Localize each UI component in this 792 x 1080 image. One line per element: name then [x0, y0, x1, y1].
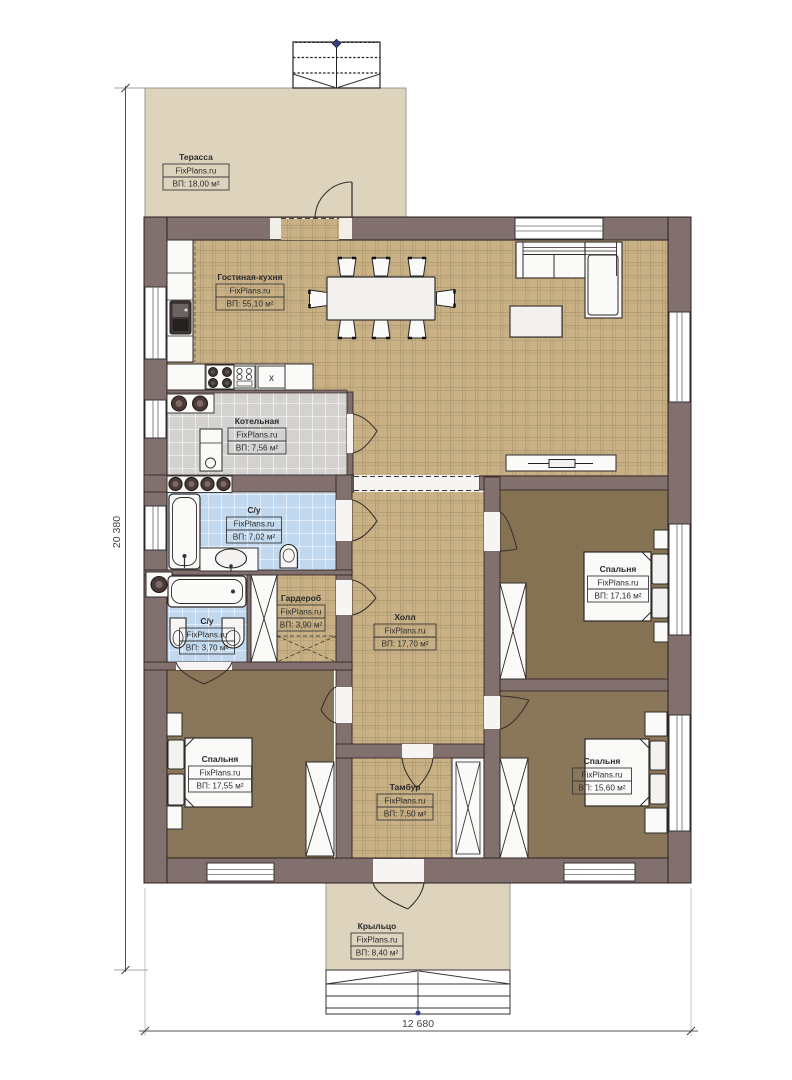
svg-text:Спальня: Спальня — [584, 756, 621, 766]
svg-text:FixPlans.ru: FixPlans.ru — [234, 520, 275, 529]
svg-text:ВП: 17,70 м²: ВП: 17,70 м² — [381, 640, 428, 649]
svg-text:FixPlans.ru: FixPlans.ru — [582, 771, 623, 780]
svg-text:FixPlans.ru: FixPlans.ru — [357, 936, 398, 945]
svg-text:ВП: 8,40 м²: ВП: 8,40 м² — [356, 949, 399, 958]
svg-text:FixPlans.ru: FixPlans.ru — [385, 797, 426, 806]
svg-text:ВП: 55,10 м²: ВП: 55,10 м² — [226, 300, 273, 309]
svg-text:ВП: 17,16 м²: ВП: 17,16 м² — [594, 592, 641, 601]
svg-text:ВП: 17,55 м²: ВП: 17,55 м² — [196, 782, 243, 791]
svg-text:Тамбур: Тамбур — [390, 782, 421, 792]
svg-text:ВП: 3,90 м²: ВП: 3,90 м² — [280, 621, 323, 630]
svg-text:x: x — [269, 373, 274, 384]
svg-text:С/у: С/у — [200, 616, 214, 626]
svg-text:ВП: 7,02 м²: ВП: 7,02 м² — [233, 533, 276, 542]
svg-text:Крыльцо: Крыльцо — [358, 921, 397, 931]
svg-text:ВП: 18,00 м²: ВП: 18,00 м² — [172, 180, 219, 189]
svg-text:FixPlans.ru: FixPlans.ru — [176, 167, 217, 176]
svg-text:FixPlans.ru: FixPlans.ru — [598, 579, 639, 588]
svg-text:FixPlans.ru: FixPlans.ru — [281, 608, 322, 617]
svg-text:FixPlans.ru: FixPlans.ru — [230, 287, 271, 296]
svg-text:Спальня: Спальня — [202, 754, 239, 764]
svg-text:ВП: 15,60 м²: ВП: 15,60 м² — [578, 784, 625, 793]
svg-text:FixPlans.ru: FixPlans.ru — [187, 631, 228, 640]
svg-text:С/у: С/у — [247, 505, 261, 515]
svg-text:Котельная: Котельная — [235, 416, 280, 426]
svg-text:Спальня: Спальня — [600, 564, 637, 574]
svg-text:Холл: Холл — [394, 612, 415, 622]
svg-text:FixPlans.ru: FixPlans.ru — [237, 431, 278, 440]
svg-text:Гостиная-кухня: Гостиная-кухня — [217, 272, 282, 282]
svg-text:FixPlans.ru: FixPlans.ru — [200, 769, 241, 778]
svg-text:ВП: 3,70 м²: ВП: 3,70 м² — [186, 644, 229, 653]
svg-text:20 380: 20 380 — [111, 516, 123, 548]
svg-text:FixPlans.ru: FixPlans.ru — [385, 627, 426, 636]
svg-text:12 680: 12 680 — [402, 1018, 434, 1030]
svg-text:ВП: 7,50 м²: ВП: 7,50 м² — [384, 810, 427, 819]
svg-text:Терасса: Терасса — [179, 152, 213, 162]
svg-text:Гардероб: Гардероб — [281, 593, 321, 603]
svg-text:ВП: 7,56 м²: ВП: 7,56 м² — [236, 444, 279, 453]
